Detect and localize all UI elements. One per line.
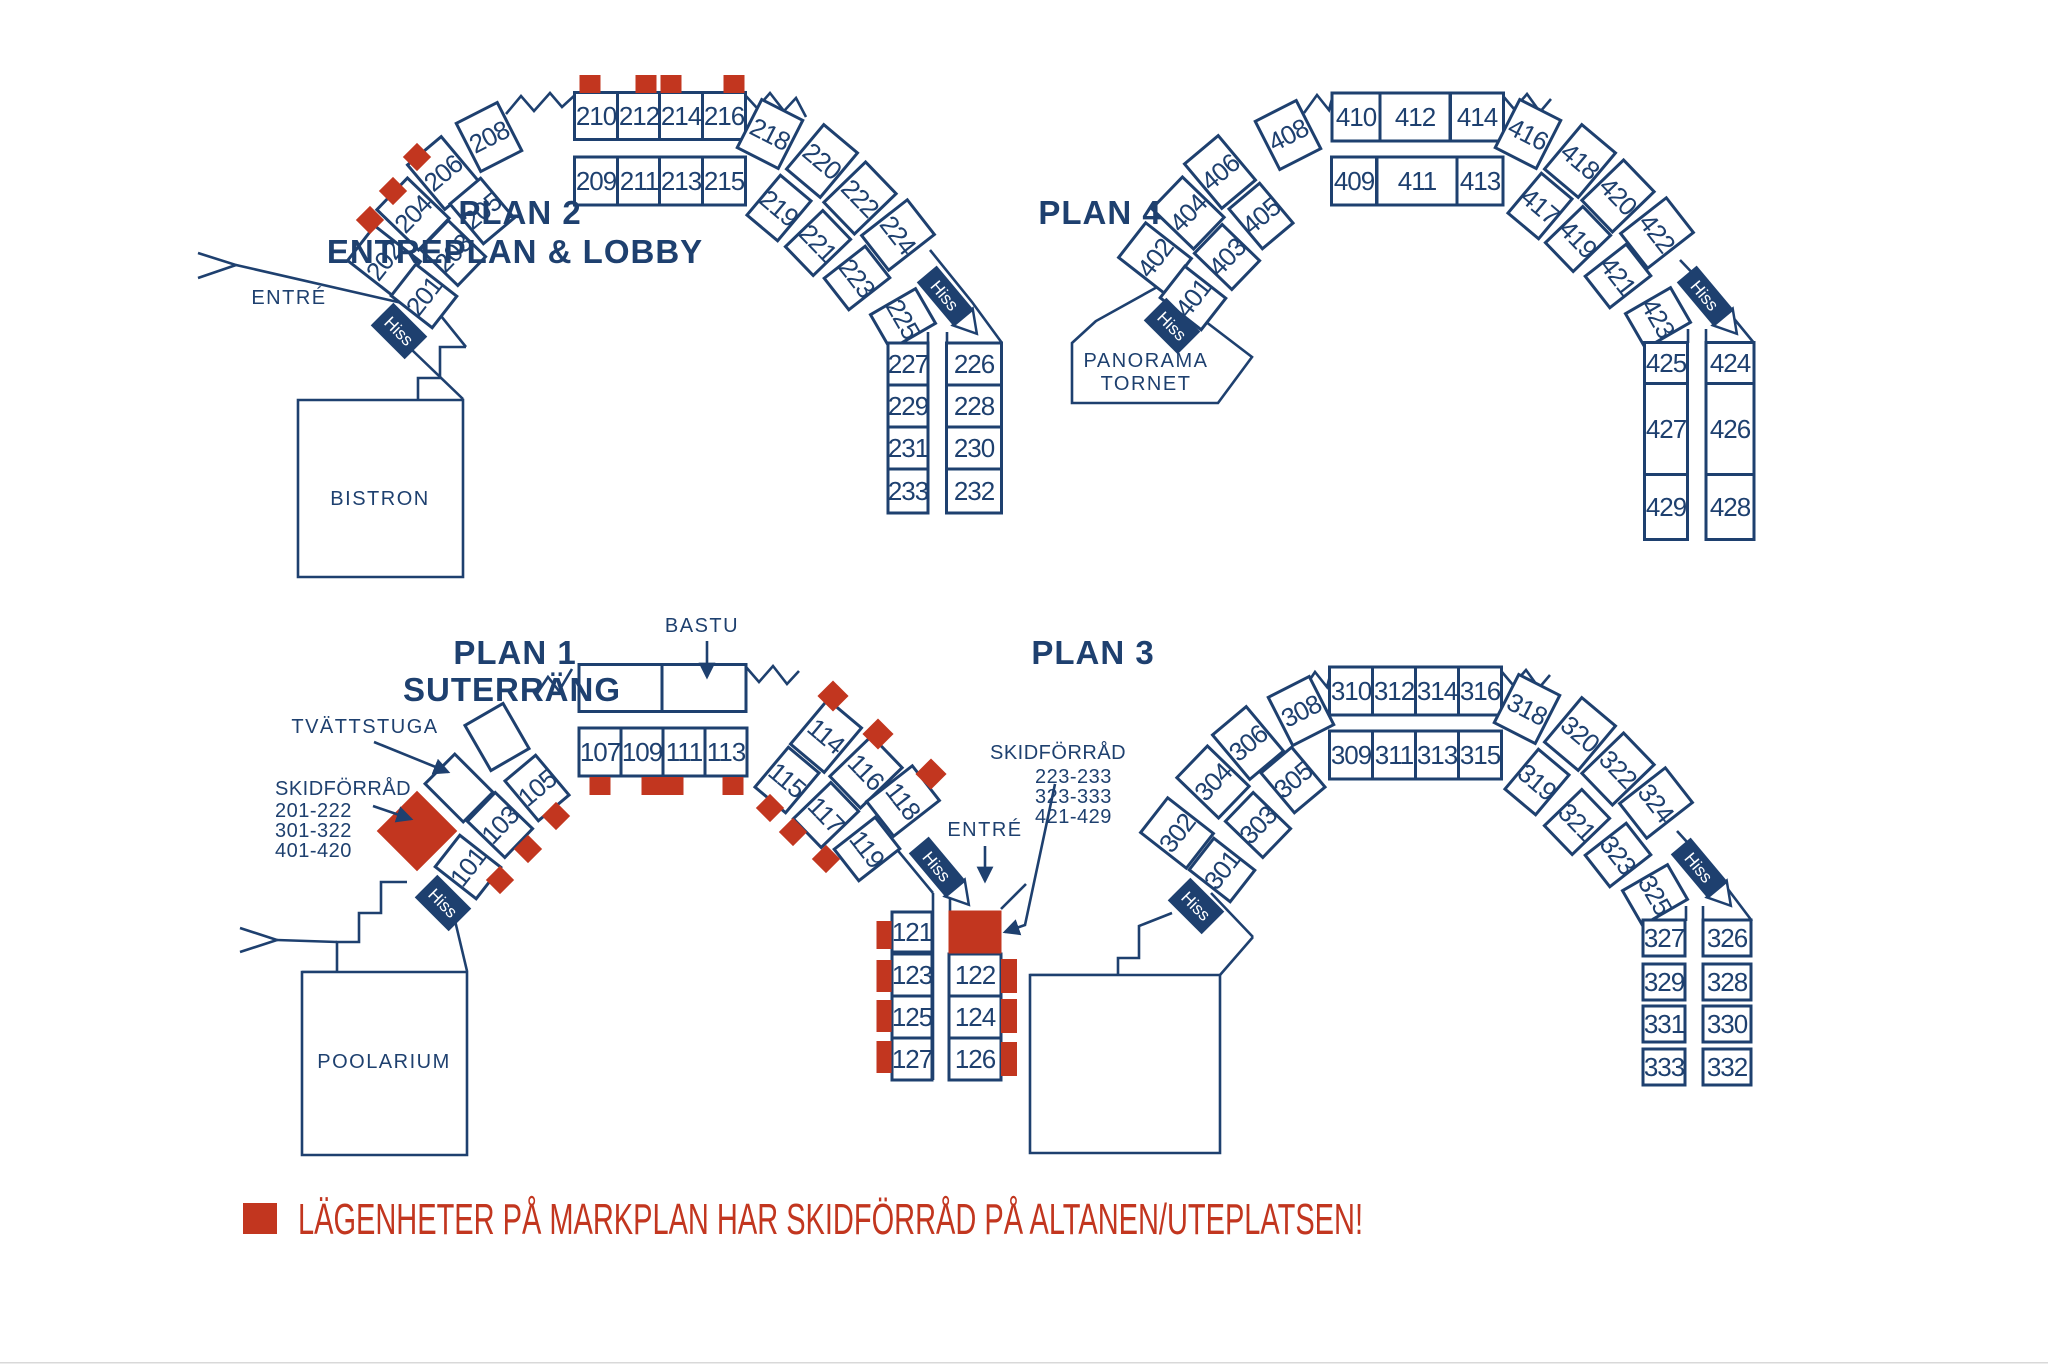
plan2-title: PLAN 2 [458,194,581,231]
room-number: 310 [1331,676,1372,706]
room-227: 227 [888,343,929,385]
plan1-red-terrace-mark [877,1000,892,1032]
room-number: 212 [619,101,660,131]
room-number: 312 [1374,676,1415,706]
plan3-outline [1030,913,1172,975]
room-412: 412 [1380,93,1450,141]
room-424: 424 [1706,343,1754,384]
room-number: 326 [1707,923,1748,953]
room-329: 329 [1643,964,1685,1000]
plan1-utility-room [465,703,529,770]
room-number: 316 [1460,676,1501,706]
room-number: 315 [1460,740,1501,770]
room-number: 216 [704,101,745,131]
room-number: 124 [955,1002,996,1032]
room-number: 127 [892,1044,933,1074]
page-bottom-edge [0,1362,2048,1364]
room-216: 216 [703,93,746,140]
room-number: 426 [1710,414,1751,444]
room-number: 429 [1646,492,1687,522]
room-410: 410 [1332,93,1380,141]
room-number: 126 [955,1044,996,1074]
room-number: 113 [707,737,746,767]
legend-red-square [243,1203,277,1234]
room-212: 212 [618,93,661,140]
room-number: 412 [1395,102,1436,132]
plan3-outline [1686,906,1703,921]
plan1-outline [746,666,799,684]
plan1-red-terrace-mark [1001,959,1017,993]
room-121: 121 [892,912,933,952]
room-number: 428 [1710,492,1751,522]
plan1-red-terrace-mark [877,960,892,992]
room-107: 107 [579,728,621,776]
room-332: 332 [1703,1049,1751,1085]
room-218: 218 [737,100,803,169]
room-414: 414 [1451,93,1504,141]
plan2-red-terrace-mark [661,75,682,93]
plan3-title: PLAN 3 [1031,634,1154,671]
room-number: 411 [1398,166,1437,196]
room-122: 122 [949,954,1001,996]
room-109: 109 [621,728,663,776]
room-number: 314 [1417,676,1458,706]
room-326: 326 [1703,920,1751,956]
room-number: 228 [954,391,995,421]
room-228: 228 [947,385,1002,427]
plan1-subtitle: SUTERRÄNG [403,671,621,708]
plan2-red-terrace-mark [724,75,745,93]
plan1-outline [1001,884,1026,909]
plan4-outline [1688,329,1706,343]
plan2-outline [418,347,466,400]
room-313: 313 [1416,731,1459,779]
room-number: 427 [1646,414,1687,444]
room-number: 111 [666,737,703,767]
room-319: 319 [1505,749,1570,815]
sauna-label: BASTU [665,615,739,637]
panorama-tower-label-line1: PANORAMA [1084,350,1209,372]
plan1-pointer-arrow [374,742,448,772]
room-124: 124 [949,996,1001,1038]
ski-storage-right-range: 323-333 [1035,786,1112,808]
room-126: 126 [949,1038,1001,1080]
ski-storage-left-range: 401-420 [275,840,352,862]
laundry-label: TVÄTTSTUGA [291,716,438,738]
plan1-title: PLAN 1 [453,634,576,671]
plan1-red-terrace-mark [723,777,744,795]
room-408: 408 [1255,101,1321,170]
ski-storage-right-range: 223-233 [1035,766,1112,788]
room-number: 332 [1707,1052,1748,1082]
room-number: 231 [888,433,929,463]
plan1-outline [302,882,407,972]
room-number: 309 [1331,740,1372,770]
plan2-red-terrace-mark [636,75,657,93]
plan2-outline [412,350,463,399]
plan1-red-terrace-mark [877,921,892,949]
room-214: 214 [660,93,703,140]
plan1-red-terrace-mark [642,777,663,795]
room-number: 232 [954,476,995,506]
legend-text: LÄGENHETER PÅ MARKPLAN HAR SKIDFÖRRÅD PÅ… [298,1195,1363,1244]
panorama-tower-label-line2: TORNET [1101,373,1192,395]
room-308: 308 [1268,677,1334,746]
plan2-outline [928,332,947,344]
ski-storage-right-title: SKIDFÖRRÅD [990,741,1126,764]
room-125: 125 [892,996,933,1038]
room-number: 107 [580,737,621,767]
room-number: 122 [955,960,996,990]
room-number: 215 [704,166,745,196]
pool-label: POOLARIUM [317,1051,451,1073]
room-number: 121 [892,917,933,947]
room-number: 123 [892,960,933,990]
room-number: 209 [576,166,617,196]
plan2-outline [506,93,575,114]
room-318: 318 [1494,675,1560,744]
room-309: 309 [1330,731,1373,779]
floorplan-canvas: 2022042062082102122142162182202222242012… [0,0,2048,1365]
room-number: 214 [661,101,702,131]
room-232: 232 [947,469,1002,513]
room-211: 211 [618,157,661,205]
room-429: 429 [1645,475,1688,540]
room-123: 123 [892,954,933,996]
plan2-outline [198,253,236,278]
room-number: 229 [888,391,929,421]
plan1-outline [277,940,337,942]
room-327: 327 [1643,920,1685,956]
room-number: 233 [888,476,929,506]
plan1-red-terrace-mark [590,777,611,795]
room-number: 227 [888,349,929,379]
ski-storage-left-title: SKIDFÖRRÅD [275,777,411,800]
room-328: 328 [1703,964,1751,1000]
room-229: 229 [888,385,929,427]
room-number: 311 [1375,740,1414,770]
plan2-red-terrace-mark [580,75,601,93]
plan1-ski-storage-box [949,911,1001,953]
room-number: 413 [1460,166,1501,196]
room-333: 333 [1643,1049,1685,1085]
plan1-red-terrace-mark [663,777,684,795]
plan2-entrance-label: ENTRÉ [251,286,326,309]
room-127: 127 [892,1038,933,1080]
room-number: 210 [576,101,617,131]
room-409: 409 [1332,157,1377,205]
room-325: 325 [1622,865,1687,926]
room-number: 109 [622,737,663,767]
room-316: 316 [1459,667,1502,715]
room-311: 311 [1373,731,1416,779]
plan3-group: 3023043063083103123143163183203223243013… [1030,667,1752,1153]
room-413: 413 [1457,157,1503,205]
room-314: 314 [1416,667,1459,715]
room-number: 230 [954,433,995,463]
room-428: 428 [1706,475,1754,540]
room-208: 208 [456,103,522,172]
room-426: 426 [1706,384,1754,475]
room-427: 427 [1645,384,1688,475]
room-331: 331 [1643,1006,1685,1042]
room-number: 328 [1707,967,1748,997]
plan1-entrance-label: ENTRÉ [947,818,1022,841]
room-number: 425 [1646,348,1687,378]
room-number: 409 [1334,166,1375,196]
floorplan-page: 2022042062082102122142162182202222242012… [0,0,2048,1365]
room-number: 329 [1644,967,1685,997]
room-310: 310 [1330,667,1373,715]
room-425: 425 [1645,343,1688,384]
room-315: 315 [1459,731,1502,779]
room-number: 226 [954,349,995,379]
plan1-outline [933,889,950,1080]
room-number: 330 [1707,1009,1748,1039]
plan1-outline [240,928,277,952]
plan1-red-terrace-mark [1001,999,1017,1033]
room-number: 313 [1417,740,1458,770]
room-231: 231 [888,427,929,469]
room-215: 215 [703,157,746,205]
plan3-outline [1030,975,1220,1153]
room-416: 416 [1495,100,1561,169]
room-226: 226 [947,343,1002,385]
room-210: 210 [575,93,618,140]
plan4-group: 4024044064084104124144164184204224014034… [1072,93,1754,540]
room-233: 233 [888,469,929,513]
bistro-label: BISTRON [330,488,429,510]
ski-storage-left-range: 201-222 [275,800,352,822]
room-230: 230 [947,427,1002,469]
room-number: 414 [1457,102,1498,132]
plan1-utility-room [662,665,746,712]
room-number: 333 [1644,1052,1685,1082]
room-number: 213 [661,166,702,196]
room-423: 423 [1625,288,1690,349]
plan1-red-terrace-mark [1001,1042,1017,1076]
room-number: 410 [1336,102,1377,132]
room-111: 111 [663,728,705,776]
room-213: 213 [660,157,703,205]
room-411: 411 [1377,157,1457,205]
room-number: 331 [1644,1009,1685,1039]
ski-storage-right-range: 421-429 [1035,806,1112,828]
room-number: 424 [1710,348,1751,378]
room-number: 211 [620,166,659,196]
ski-storage-left-range: 301-322 [275,820,352,842]
plan2-subtitle: ENTRÉPLAN & LOBBY [327,233,703,270]
plan4-outline [1304,95,1333,113]
room-312: 312 [1373,667,1416,715]
plan4-title: PLAN 4 [1038,194,1161,231]
plan1-red-terrace-mark [877,1041,892,1073]
room-number: 125 [892,1002,933,1032]
room-225: 225 [870,289,935,350]
room-330: 330 [1703,1006,1751,1042]
plan2-group: 2022042062082102122142162182202222242012… [198,75,1002,577]
room-113: 113 [705,728,747,776]
room-number: 327 [1644,923,1685,953]
